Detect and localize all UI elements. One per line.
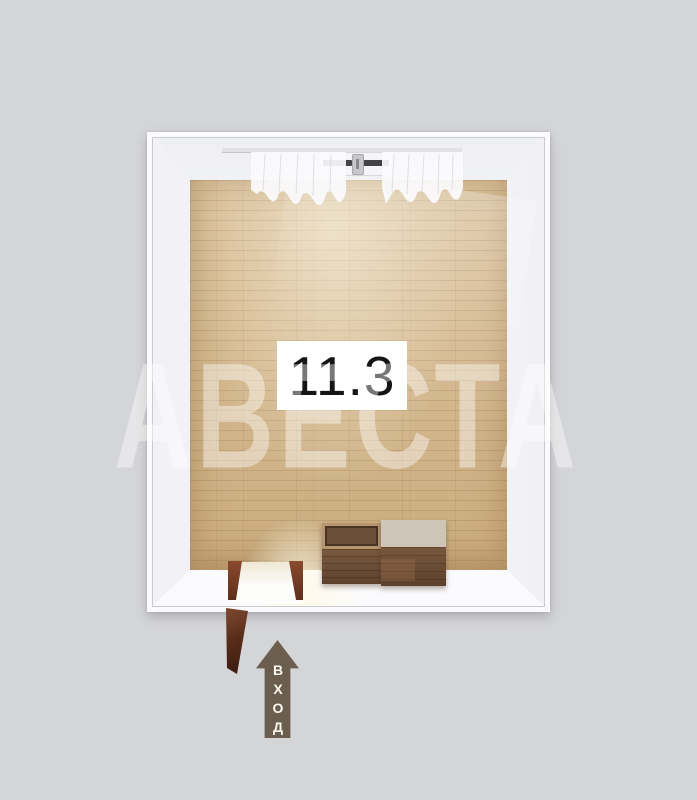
- floorplan-scene: ВХОД 11.3 АВЕСТА: [0, 0, 697, 800]
- open-door-leaf: [222, 608, 250, 676]
- wooden-chest-open-top: [322, 523, 381, 584]
- wooden-dresser: [381, 520, 446, 586]
- dresser-top-face: [381, 520, 446, 548]
- chest-front-face: [322, 549, 381, 584]
- window-frame: [318, 152, 396, 176]
- area-label: 11.3: [289, 344, 396, 408]
- dresser-front-face: [381, 547, 446, 586]
- entrance-arrow-icon: ВХОД: [256, 640, 299, 738]
- area-label-box: 11.3: [277, 341, 407, 410]
- window-slot-right: [362, 160, 389, 166]
- entrance-label: ВХОД: [256, 664, 299, 736]
- window-handle-icon: [352, 154, 364, 175]
- window-slot-left: [323, 160, 352, 166]
- chest-open-top-face: [322, 523, 381, 549]
